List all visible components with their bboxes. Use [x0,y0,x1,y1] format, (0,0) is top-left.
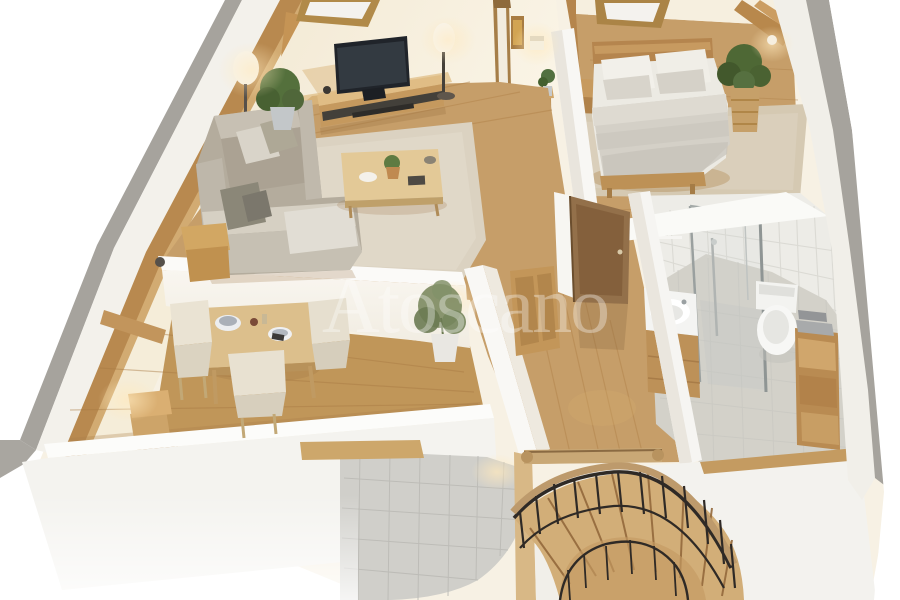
svg-text:Atoscano: Atoscano [322,262,608,350]
